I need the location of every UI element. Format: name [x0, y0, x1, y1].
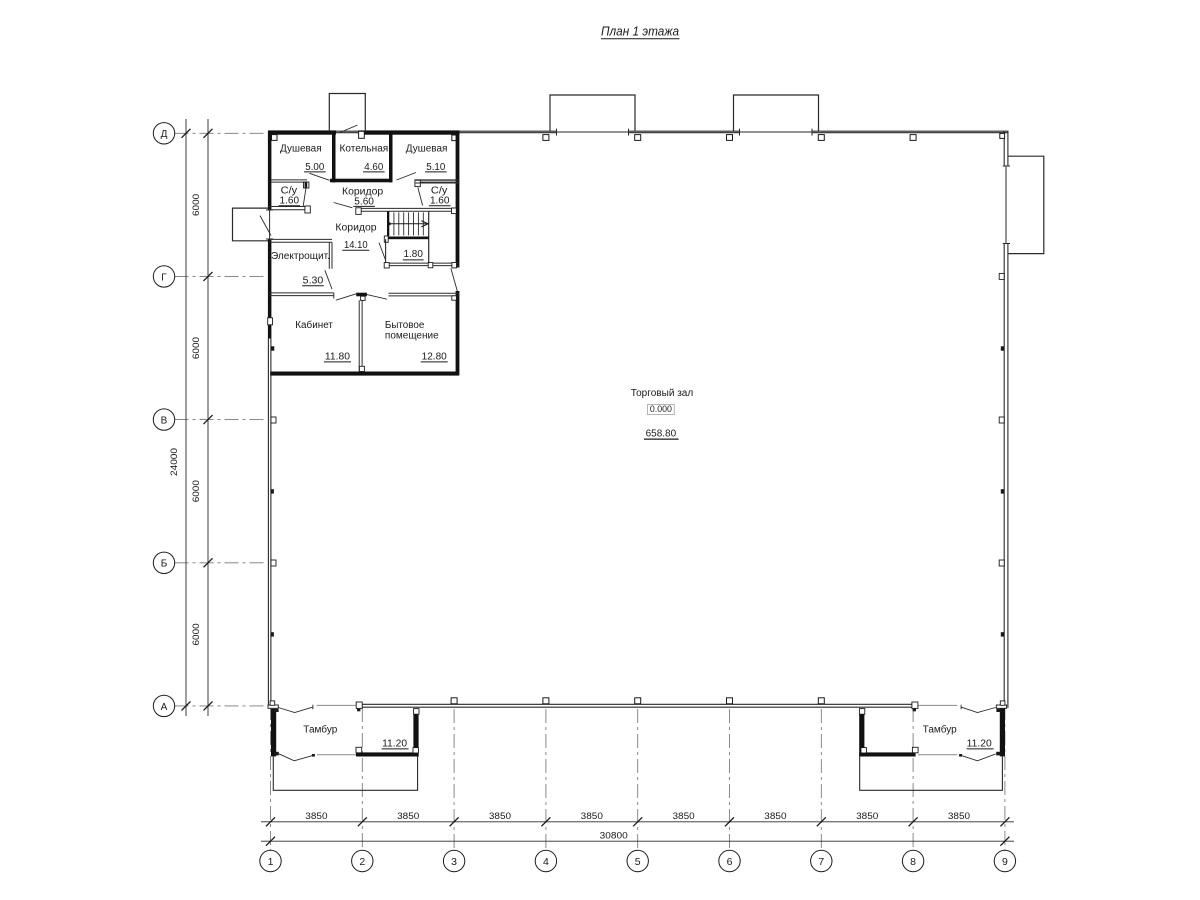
svg-text:11.20: 11.20 [967, 739, 992, 750]
svg-text:Электрощит.: Электрощит. [271, 251, 330, 262]
svg-text:С/у: С/у [281, 185, 298, 196]
svg-text:9: 9 [1002, 856, 1008, 868]
svg-text:1.80: 1.80 [404, 249, 424, 260]
svg-text:Г: Г [161, 272, 167, 283]
svg-text:7: 7 [818, 856, 824, 868]
svg-text:658.80: 658.80 [646, 428, 677, 440]
svg-text:Душевая: Душевая [280, 144, 322, 155]
svg-text:Душевая: Душевая [406, 144, 448, 155]
svg-text:12.80: 12.80 [422, 351, 448, 362]
svg-text:5.00: 5.00 [305, 162, 324, 173]
svg-text:Кабинет: Кабинет [295, 320, 333, 331]
svg-text:0.000: 0.000 [650, 404, 672, 414]
svg-text:В: В [161, 416, 168, 427]
svg-text:План 1 этажа: План 1 этажа [601, 25, 679, 39]
svg-text:А: А [161, 702, 168, 713]
svg-text:Коридор: Коридор [335, 223, 377, 234]
svg-text:8: 8 [910, 856, 916, 868]
svg-text:3850: 3850 [581, 811, 603, 821]
svg-text:6000: 6000 [191, 623, 201, 645]
svg-text:5: 5 [635, 856, 641, 868]
svg-text:4: 4 [543, 856, 549, 868]
svg-text:3850: 3850 [856, 811, 878, 821]
svg-text:Д: Д [161, 129, 168, 140]
svg-text:3850: 3850 [673, 811, 695, 821]
svg-text:11.20: 11.20 [382, 739, 407, 750]
svg-text:3850: 3850 [397, 811, 419, 821]
svg-text:6000: 6000 [191, 194, 201, 216]
svg-text:3850: 3850 [489, 811, 511, 821]
svg-text:С/у: С/у [431, 185, 448, 196]
svg-text:Тамбур: Тамбур [303, 725, 338, 736]
svg-text:помещение: помещение [385, 331, 439, 342]
svg-text:30800: 30800 [600, 831, 628, 841]
svg-text:3850: 3850 [948, 811, 970, 821]
svg-text:5.60: 5.60 [354, 197, 374, 208]
svg-text:Тамбур: Тамбур [923, 725, 958, 736]
svg-text:1: 1 [268, 856, 274, 868]
svg-text:14.10: 14.10 [344, 240, 368, 251]
svg-text:3850: 3850 [305, 811, 327, 821]
svg-text:2: 2 [359, 856, 365, 868]
svg-text:24000: 24000 [169, 448, 179, 476]
svg-text:3: 3 [451, 856, 457, 868]
svg-text:Б: Б [161, 559, 168, 570]
svg-text:11.80: 11.80 [325, 351, 351, 362]
svg-text:6: 6 [727, 856, 733, 868]
svg-text:1.60: 1.60 [280, 196, 300, 207]
svg-text:3850: 3850 [764, 811, 786, 821]
svg-text:Бытовое: Бытовое [385, 320, 425, 331]
svg-text:6000: 6000 [191, 337, 201, 359]
svg-text:Торговый зал: Торговый зал [631, 388, 694, 399]
svg-text:1.60: 1.60 [430, 196, 450, 207]
svg-text:5.30: 5.30 [303, 275, 324, 286]
svg-text:Котельная: Котельная [340, 144, 389, 155]
svg-text:5.10: 5.10 [426, 162, 445, 173]
svg-text:6000: 6000 [191, 480, 201, 502]
svg-text:4.60: 4.60 [364, 162, 383, 173]
